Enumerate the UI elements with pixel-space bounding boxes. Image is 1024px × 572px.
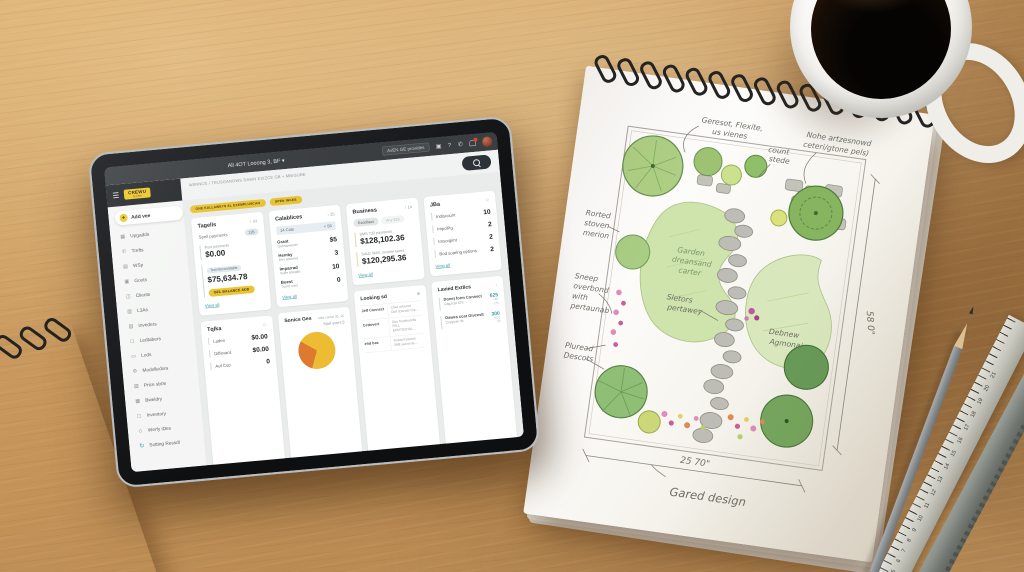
plus-icon: + [119, 214, 128, 223]
star-icon[interactable]: ☆ [485, 197, 490, 203]
card-icon: ▭ [130, 353, 136, 359]
list-item: Dawes cost GivcesltCregizet rift 300-0/3… [440, 311, 501, 330]
tablet: All 4OT Looong 3, BF ▾ AvEN GE provides … [88, 115, 541, 488]
list-item: Laden$0.00 [208, 332, 268, 345]
search-button[interactable] [461, 154, 491, 171]
filter-chip[interactable]: SPEN INKES [269, 196, 302, 206]
dashboard-main: ONE KALLAWEYS EL EXEMPLUSCAN SPEN INKES … [182, 172, 524, 466]
notifications-bell-icon[interactable] [469, 140, 476, 147]
package-icon: ▢ [136, 413, 142, 419]
help-icon[interactable]: ? [448, 142, 452, 148]
view-all-link[interactable]: View all [205, 302, 220, 308]
expand-icon[interactable]: ⊞ [416, 291, 420, 296]
balance-button[interactable]: GEL BALANCE ADD [208, 285, 254, 297]
shield-icon: ◇ [137, 428, 143, 434]
svg-text:Gared design: Gared design [669, 485, 747, 510]
grid-icon: ▦ [120, 234, 126, 240]
gear-icon: ⚙ [132, 368, 138, 374]
view-all-link[interactable]: View all [282, 294, 297, 300]
list-item: ImpolPg2 [432, 220, 492, 233]
svg-text:pertaunab: pertaunab [569, 301, 610, 315]
trend-indicator: ↑ 14 [404, 205, 412, 210]
tablet-screen: All 4OT Looong 3, BF ▾ AvEN GE provides … [104, 132, 524, 472]
phone-icon: ✆ [121, 248, 127, 254]
card-talks: Tqlka☆ Laden$0.00 Diffevant.$0.00 Auf Co… [200, 315, 288, 472]
list-item: Bod soaring options2 [434, 245, 494, 258]
dashboard-app: All 4OT Looong 3, BF ▾ AvEN GE provides … [104, 132, 524, 472]
list-item: Auf Cop0 [210, 357, 270, 370]
plan-button[interactable]: AvEN GE provides [382, 142, 430, 155]
sync-icon: ↻ [139, 442, 146, 450]
card-calablices: Calablices↑ 25 14 Cats< 56 GrantDebrawwn… [268, 205, 348, 308]
coffee-surface [811, 0, 951, 99]
toggle-pill-inactive[interactable]: Any $25 [381, 215, 404, 225]
view-all-link[interactable]: View all [358, 272, 373, 278]
list-item: Diffevant.$0.00 [209, 345, 269, 358]
calendar-icon[interactable]: ▣ [436, 143, 442, 149]
svg-text:25 70": 25 70" [679, 456, 710, 470]
card-business: Business↑ 14 Excellaus Any $25 SMS 732 p… [346, 198, 425, 286]
pie-chart [297, 330, 337, 370]
app-logo: CREWU by crewu [124, 187, 151, 200]
list-item: GrantDebrawwnds$5 [277, 234, 337, 248]
card-looking-sd: Looking sd⊞ Jeff ConnectClout oxburedDol… [354, 285, 442, 471]
list-item: ImparradSuffe ahealth10 [279, 261, 339, 275]
receipt-icon: ▧ [128, 323, 134, 329]
svg-text:58 0": 58 0" [864, 311, 876, 336]
toggle-pill-active[interactable]: Excellaus [353, 217, 379, 227]
trend-indicator: ↑ 25 [327, 212, 335, 217]
trend-indicator: ↑ [495, 282, 497, 287]
phone-icon[interactable]: ✆ [457, 141, 463, 147]
user-avatar[interactable] [482, 136, 493, 147]
add-new-button[interactable]: + Add vee [114, 206, 183, 226]
card-jobs: JBa☆ Indiscount10 ImpolPg2 Imsorgimt2 Bo… [423, 191, 502, 277]
person-icon: ◻ [129, 338, 135, 344]
star-icon[interactable]: ☆ [262, 322, 267, 328]
people-icon: ◫ [125, 293, 131, 299]
view-all-link[interactable]: View all [435, 263, 450, 269]
file-icon: ▥ [126, 308, 132, 314]
desk-photo: Geresot, Flexite, us vienes count stede … [0, 0, 1024, 572]
list-item: Done) form ConnectCagzcat iOS 625+BT-276 [438, 292, 499, 311]
list-item: BuestTurnd owrt0 [281, 275, 341, 289]
document-icon: ▤ [122, 263, 128, 269]
summary-bar: 14 Cats< 56 [276, 221, 336, 235]
card-sonics-ges: Sonics Gesotba comat 30, 15 Start overs … [278, 307, 366, 472]
card-lavied-extlics: Lavied Extlics↑ Done) form ConnectCagzca… [431, 276, 519, 462]
filter-chip[interactable]: ONE KALLAWEYS EL EXEMPLUSCAN [190, 199, 266, 213]
status-badge: Test Reconcilable [206, 265, 241, 274]
box-icon: ▨ [133, 383, 139, 389]
list-item: HembyDev adrrned3 [278, 248, 338, 262]
trend-indicator: ↑ 43 [249, 219, 257, 224]
list-item: Indiscount10 [431, 208, 491, 221]
chart-icon: ▦ [134, 398, 140, 404]
calendar-icon: ▣ [124, 278, 130, 284]
list-item: Imsorgimt2 [433, 233, 493, 246]
count-badge: 135 [245, 228, 259, 236]
hamburger-menu-icon[interactable]: ☰ [112, 191, 120, 201]
card-tagells: Tagells↑ 43 Spell payments135 Post payme… [191, 212, 271, 316]
search-icon [473, 159, 481, 167]
